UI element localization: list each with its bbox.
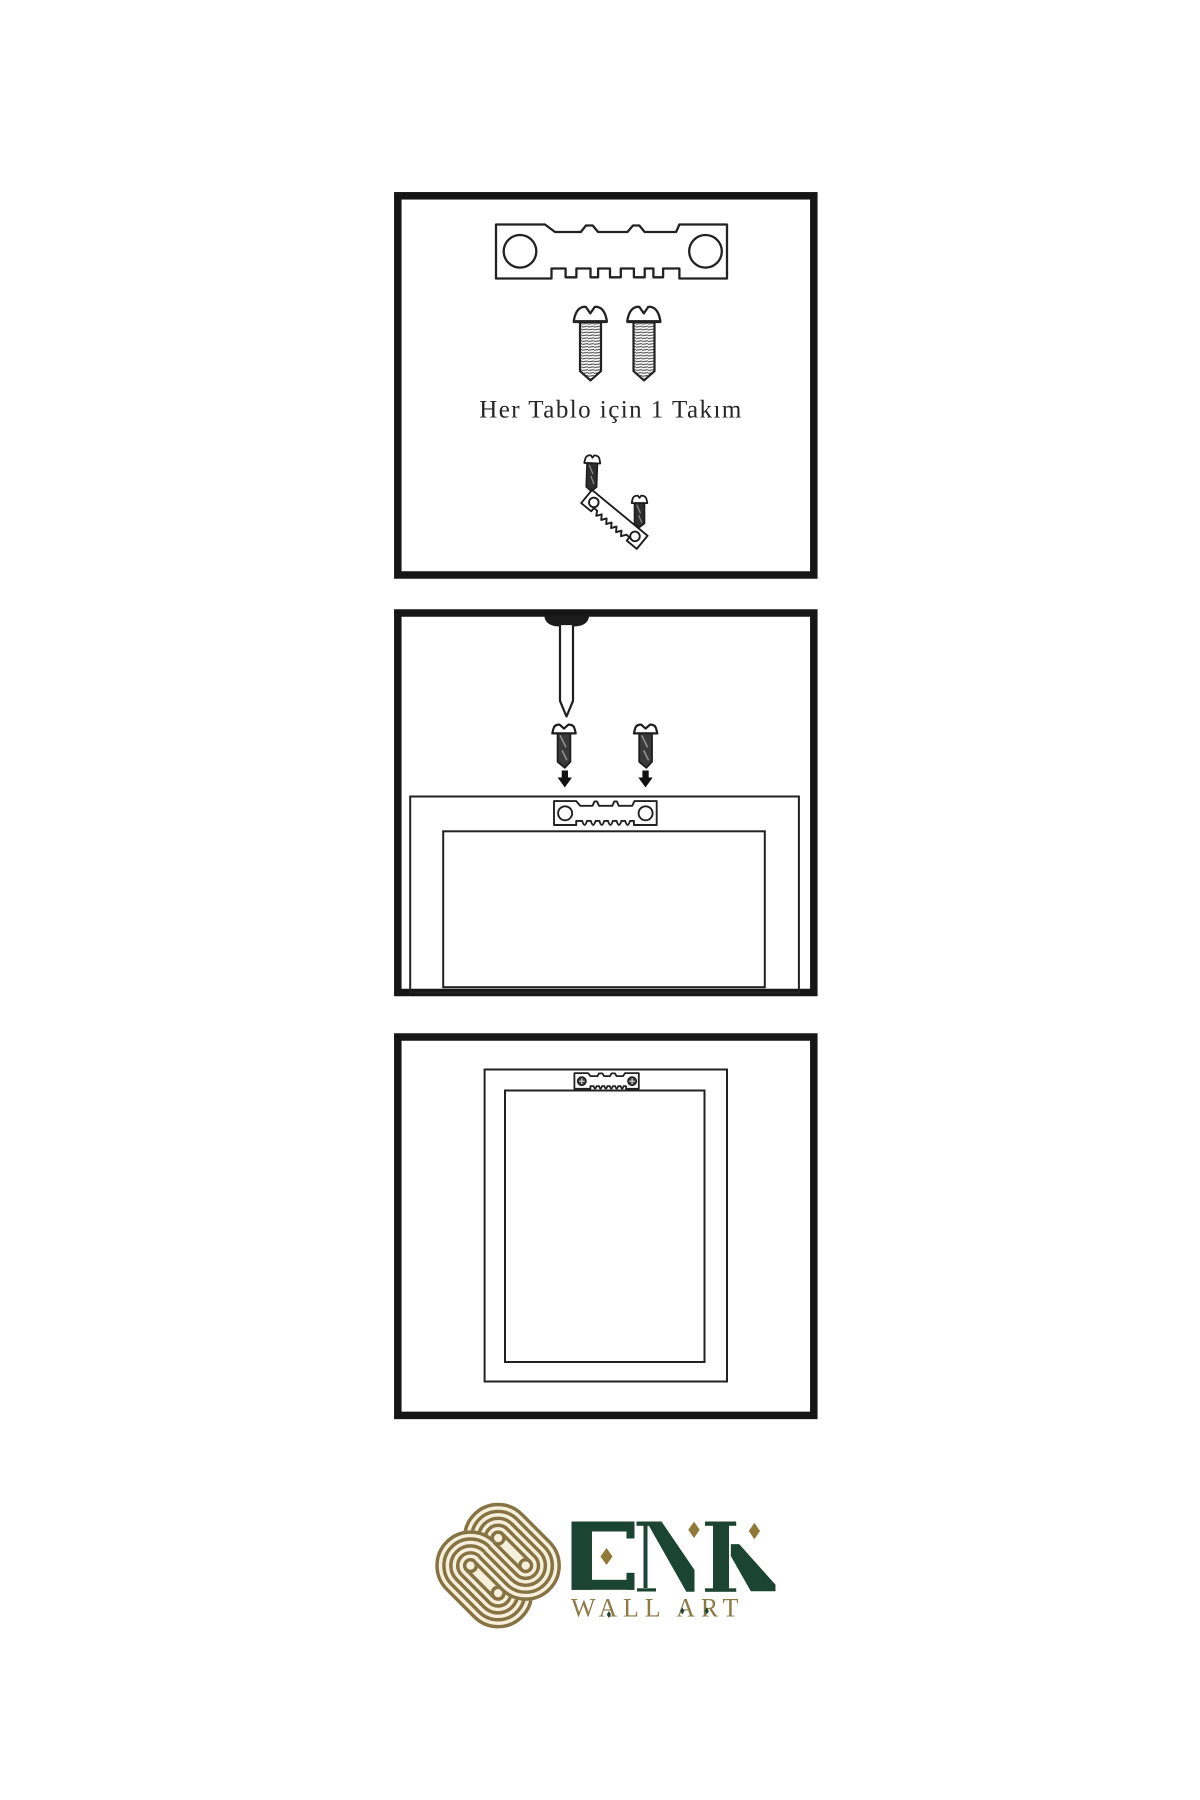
svg-text:Her Tablo için 1 Takım: Her Tablo için 1 Takım bbox=[479, 397, 743, 424]
svg-text:WALL ART: WALL ART bbox=[571, 1594, 744, 1623]
